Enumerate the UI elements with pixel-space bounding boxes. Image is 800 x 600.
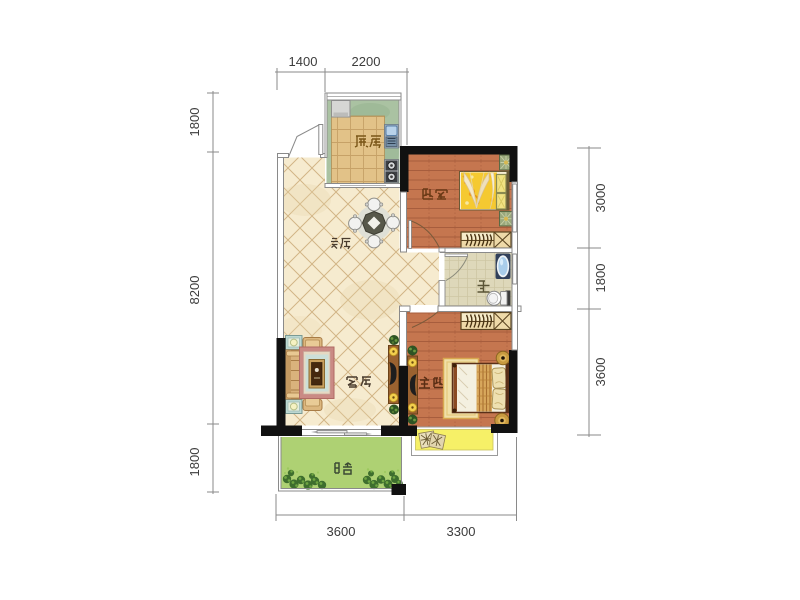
svg-text:1800: 1800 (187, 108, 202, 137)
svg-text:2200: 2200 (352, 54, 381, 69)
svg-text:3600: 3600 (327, 524, 356, 539)
svg-text:3600: 3600 (593, 358, 608, 387)
svg-text:8200: 8200 (187, 276, 202, 305)
svg-text:1800: 1800 (187, 448, 202, 477)
svg-text:3000: 3000 (593, 184, 608, 213)
svg-text:1800: 1800 (593, 264, 608, 293)
svg-text:3300: 3300 (447, 524, 476, 539)
svg-text:1400: 1400 (289, 54, 318, 69)
